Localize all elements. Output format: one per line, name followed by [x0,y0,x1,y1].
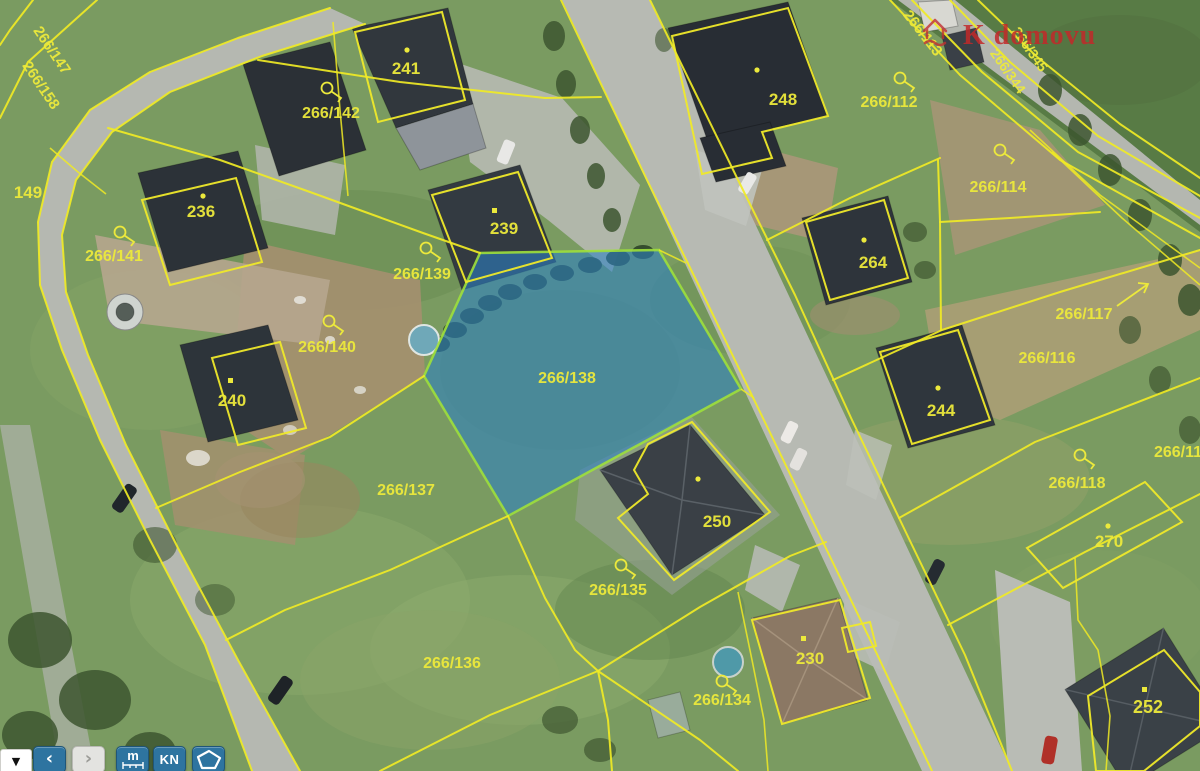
forward-button[interactable]: › [72,746,105,771]
svg-text:m: m [127,748,139,763]
parcel-label: 149 [14,183,42,202]
building-label: 230 [796,649,824,668]
building-label: 264 [859,253,888,272]
parcel-label: 266/136 [423,655,481,672]
measure-icon: m [119,748,147,771]
parcel-label: 266/118 [1049,475,1106,492]
building-label: 241 [392,59,420,78]
measure-button[interactable]: m [116,746,149,771]
parcel-label: 266/135 [589,582,647,599]
building-label: 236 [187,202,215,221]
parcel-label: 266/139 [393,266,451,283]
parcel-label: 266/140 [298,339,356,356]
water-tank [107,294,143,330]
building-label: 248 [769,90,797,109]
pool [713,647,743,677]
parcel-label: 266/134 [693,692,751,709]
polygon-icon [195,748,223,771]
building-label: 244 [927,401,956,420]
building-label: 250 [703,512,731,531]
caret-down-icon: ▼ [12,755,20,768]
parcel-label: 266/141 [85,248,143,265]
map-viewport[interactable]: 266/147 266/158 149 266/142 241 266/141 … [0,0,1200,771]
back-button[interactable]: ‹ [33,746,66,771]
chevron-right-icon: › [85,750,92,768]
selected-parcel-label: 266/138 [538,370,596,387]
parcel-label: 266/117 [1056,306,1113,323]
building-label: 270 [1095,532,1123,551]
building-label: 240 [218,391,246,410]
polygon-select-button[interactable] [192,746,225,771]
cadastre-button[interactable]: KN [153,746,186,771]
street-name: K domovu [963,20,1096,51]
layers-dropdown[interactable]: ▼ [0,749,32,771]
parcel-label: 266/137 [377,482,435,499]
chevron-left-icon: ‹ [46,750,53,768]
parcel-label: 266/116 [1019,350,1076,367]
parcel-label: 266/112 [861,94,918,111]
parcel-label: 266/142 [302,105,360,122]
parcel-label: 266/114 [970,179,1027,196]
parcel-label: 266/11 [1154,444,1200,461]
building-label: 252 [1133,697,1163,717]
cadastre-label: KN [160,752,180,767]
aerial-map[interactable]: 266/147 266/158 149 266/142 241 266/141 … [0,0,1200,771]
building-label: 239 [490,219,518,238]
